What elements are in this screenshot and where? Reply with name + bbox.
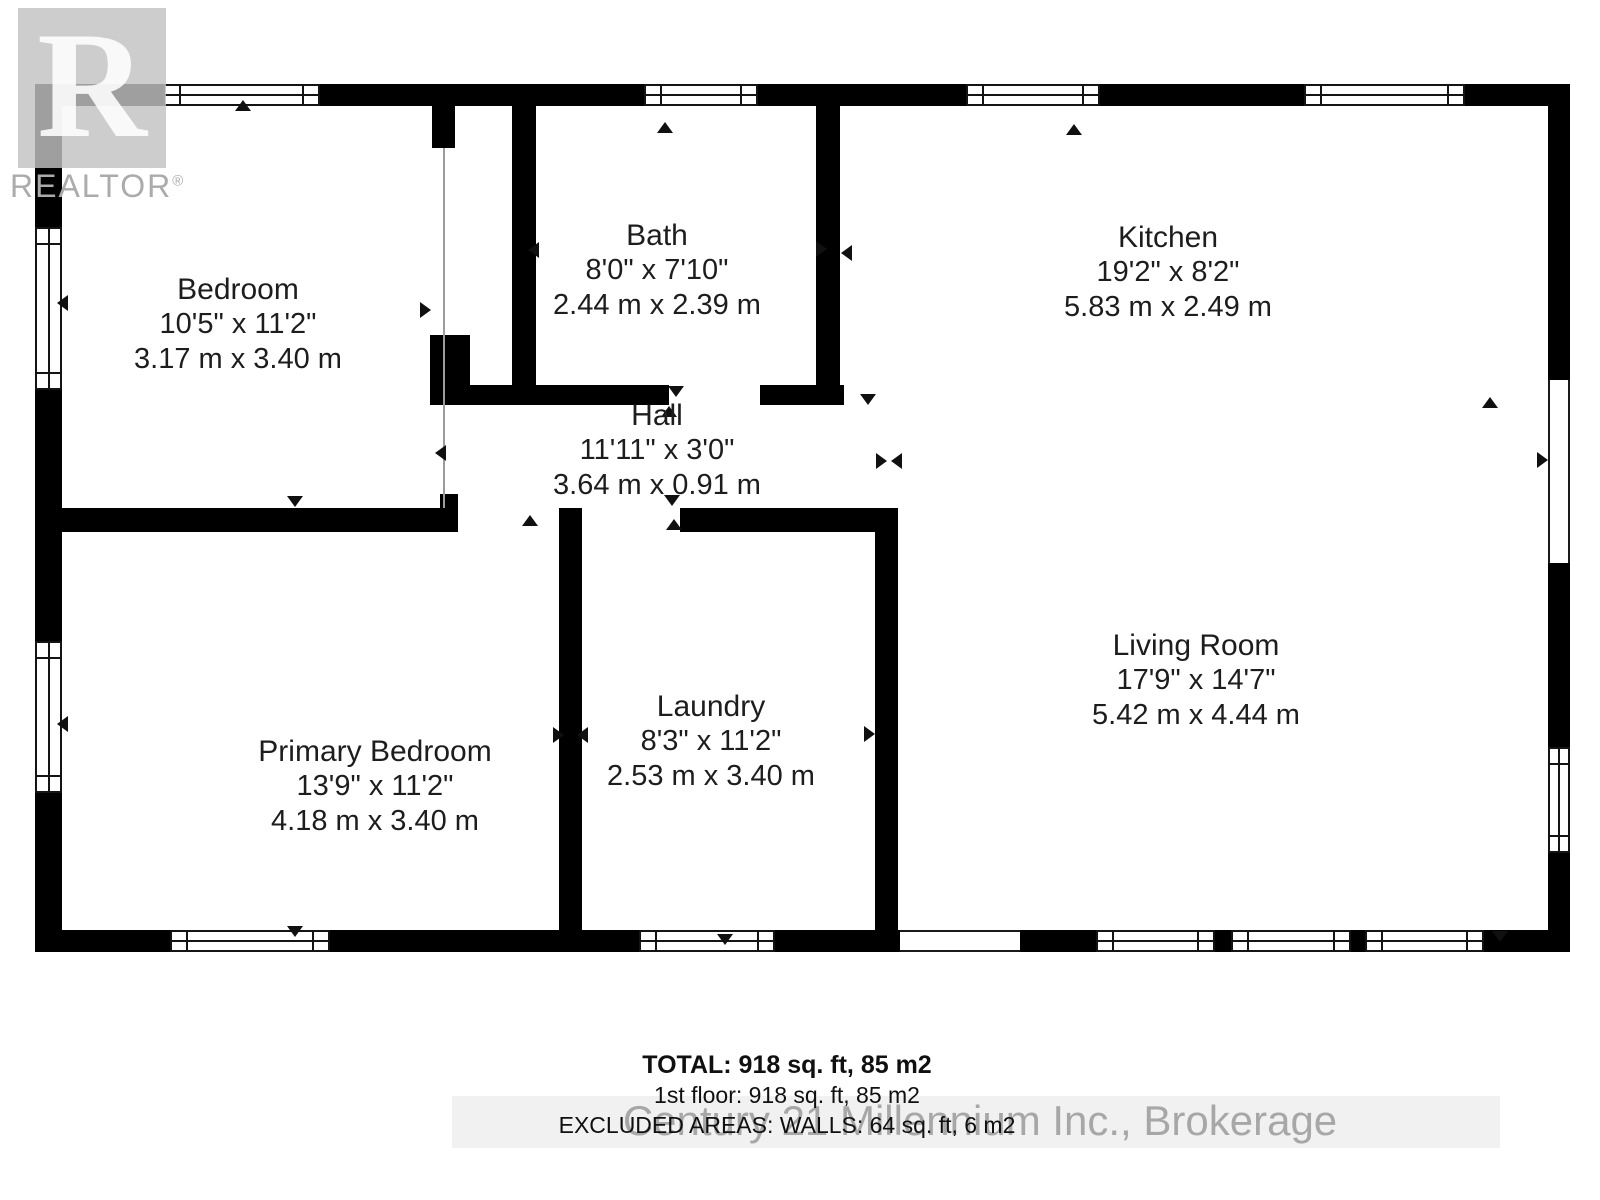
room-label-laundry: Laundry8'3" x 11'2"2.53 m x 3.40 m xyxy=(607,689,815,794)
room-label-kitchen: Kitchen19'2" x 8'2"5.83 m x 2.49 m xyxy=(1064,220,1272,325)
realtor-wordmark: REALTOR® xyxy=(10,168,185,205)
realtor-logo-r-icon: R xyxy=(37,9,147,161)
realtor-wordmark-text: REALTOR xyxy=(10,168,172,204)
room-label-bath: Bath8'0" x 7'10"2.44 m x 2.39 m xyxy=(553,218,761,323)
door-direction-icon xyxy=(528,242,539,258)
door-direction-icon xyxy=(435,445,446,461)
door-opening xyxy=(1548,380,1570,563)
room-imperial-text: 17'9" x 14'7" xyxy=(1092,663,1300,698)
wall xyxy=(432,106,455,148)
room-name-text: Hall xyxy=(553,398,761,433)
window-icon xyxy=(639,930,775,952)
total-area-text: TOTAL: 918 sq. ft, 85 m2 xyxy=(559,1050,1016,1080)
room-name-text: Bedroom xyxy=(134,272,342,307)
window-icon xyxy=(966,84,1100,106)
wall xyxy=(35,508,458,532)
wall xyxy=(760,385,844,405)
door-direction-icon xyxy=(1066,124,1082,135)
room-metric-text: 3.64 m x 0.91 m xyxy=(553,468,761,503)
door-direction-icon xyxy=(287,926,303,937)
room-metric-text: 5.83 m x 2.49 m xyxy=(1064,290,1272,325)
room-label-primary-bedroom: Primary Bedroom13'9" x 11'2"4.18 m x 3.4… xyxy=(258,734,491,839)
room-name-text: Bath xyxy=(553,218,761,253)
room-label-hall: Hall11'11" x 3'0"3.64 m x 0.91 m xyxy=(553,398,761,503)
room-metric-text: 4.18 m x 3.40 m xyxy=(258,804,491,839)
room-metric-text: 2.44 m x 2.39 m xyxy=(553,288,761,323)
room-name-text: Laundry xyxy=(607,689,815,724)
window-icon xyxy=(1304,84,1465,106)
door-direction-icon xyxy=(57,716,68,732)
door-direction-icon xyxy=(841,245,852,261)
excluded-areas-text: EXCLUDED AREAS: WALLS: 64 sq. ft, 6 m2 xyxy=(559,1110,1016,1140)
first-floor-area-text: 1st floor: 918 sq. ft, 85 m2 xyxy=(559,1080,1016,1110)
window-icon xyxy=(170,930,330,952)
door-direction-icon xyxy=(860,394,876,405)
door-direction-icon xyxy=(1537,452,1548,468)
door-direction-icon xyxy=(657,122,673,133)
door-direction-icon xyxy=(553,727,564,743)
door-direction-icon xyxy=(235,100,251,111)
door-direction-icon xyxy=(577,727,588,743)
wall xyxy=(680,508,898,532)
wall xyxy=(1548,563,1570,747)
room-imperial-text: 8'3" x 11'2" xyxy=(607,724,815,759)
floor-plan-canvas: Bedroom10'5" x 11'2"3.17 m x 3.40 mBath8… xyxy=(0,0,1600,1200)
room-label-bedroom: Bedroom10'5" x 11'2"3.17 m x 3.40 m xyxy=(134,272,342,377)
room-name-text: Kitchen xyxy=(1064,220,1272,255)
window-icon xyxy=(644,84,758,106)
door-direction-icon xyxy=(1482,397,1498,408)
door-opening xyxy=(900,930,1020,952)
door-direction-icon xyxy=(1492,931,1508,942)
door-direction-icon xyxy=(816,241,827,257)
door-direction-icon xyxy=(420,302,431,318)
room-name-text: Primary Bedroom xyxy=(258,734,491,769)
door-direction-icon xyxy=(864,726,875,742)
room-metric-text: 2.53 m x 3.40 m xyxy=(607,759,815,794)
realtor-logo: R xyxy=(18,8,166,168)
window-icon xyxy=(1096,930,1215,952)
room-label-living-room: Living Room17'9" x 14'7"5.42 m x 4.44 m xyxy=(1092,628,1300,733)
room-name-text: Living Room xyxy=(1092,628,1300,663)
room-imperial-text: 10'5" x 11'2" xyxy=(134,307,342,342)
wall xyxy=(875,508,898,952)
room-imperial-text: 11'11" x 3'0" xyxy=(553,433,761,468)
door-direction-icon xyxy=(668,386,684,397)
door-direction-icon xyxy=(717,934,733,945)
registered-trademark-icon: ® xyxy=(172,172,185,189)
door-direction-icon xyxy=(666,519,682,530)
room-imperial-text: 13'9" x 11'2" xyxy=(258,769,491,804)
room-metric-text: 5.42 m x 4.44 m xyxy=(1092,698,1300,733)
window-icon xyxy=(1548,747,1570,853)
room-metric-text: 3.17 m x 3.40 m xyxy=(134,342,342,377)
door-direction-icon xyxy=(876,453,887,469)
window-icon xyxy=(1365,930,1484,952)
door-direction-icon xyxy=(522,515,538,526)
room-imperial-text: 19'2" x 8'2" xyxy=(1064,255,1272,290)
room-imperial-text: 8'0" x 7'10" xyxy=(553,253,761,288)
window-icon xyxy=(1231,930,1351,952)
wall xyxy=(1548,84,1570,380)
door-direction-icon xyxy=(891,453,902,469)
door-direction-icon xyxy=(57,295,68,311)
door-direction-icon xyxy=(287,496,303,507)
area-summary: TOTAL: 918 sq. ft, 85 m2 1st floor: 918 … xyxy=(559,1050,1016,1140)
